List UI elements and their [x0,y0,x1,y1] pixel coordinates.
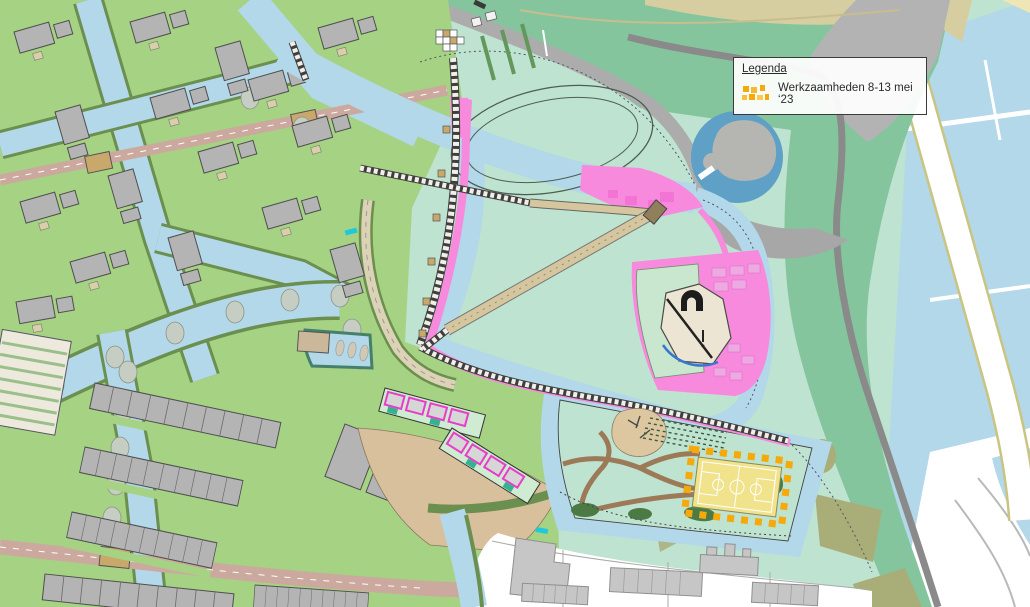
boathouse [297,331,329,353]
pond [691,111,783,203]
legend-item: Werkzaamheden 8-13 mei ‘23 [742,82,918,106]
legend-title: Legenda [742,63,918,75]
legend-item-label: Werkzaamheden 8-13 mei ‘23 [778,82,918,106]
site-plan-viewport: Legenda Werkzaamheden 8-13 mei ‘23 [0,0,1030,607]
legend-box: Legenda Werkzaamheden 8-13 mei ‘23 [733,57,927,115]
works-hatch-icon [742,85,769,103]
